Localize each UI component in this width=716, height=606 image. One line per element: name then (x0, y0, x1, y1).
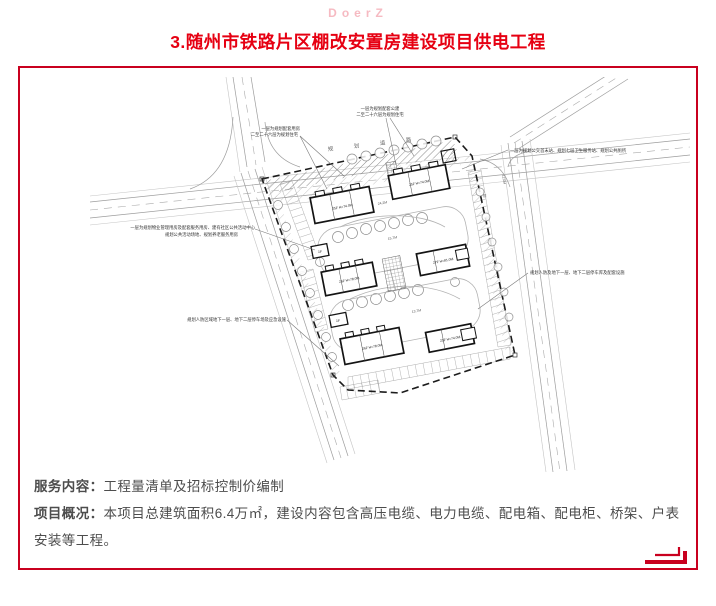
svg-text:1F: 1F (318, 250, 322, 254)
svg-text:12.0M: 12.0M (501, 174, 507, 184)
svg-text:规划人防区域地下一层、地下二层停车场及应急设施: 规划人防区域地下一层、地下二层停车场及应急设施 (187, 316, 287, 323)
slide-page: DoerZ 3.随州市铁路片区棚改安置房建设项目供电工程 (0, 0, 716, 606)
building-6: 25F H=74.0M (426, 323, 478, 352)
site-plan-drawing: 规 划 道 路 规 划 路 (90, 77, 690, 472)
building-3: 26F H=78.0M (320, 257, 377, 295)
svg-text:二至二十六层为规划住宅: 二至二十六层为规划住宅 (356, 111, 404, 118)
project-description: 服务内容：工程量清单及招标控制价编制 项目概况：本项目总建筑面积6.4万㎡，建设… (34, 473, 688, 554)
svg-text:规: 规 (327, 144, 334, 153)
svg-text:规划公共活动场地、规划养老服务用房: 规划公共活动场地、规划养老服务用房 (165, 231, 238, 238)
svg-text:24.2M: 24.2M (377, 200, 387, 206)
svg-text:13.7M: 13.7M (411, 308, 421, 314)
watermark: DoerZ (0, 6, 716, 20)
corner-bracket-icon (642, 545, 690, 565)
svg-text:一层为规划配套公建: 一层为规划配套公建 (361, 105, 400, 112)
svg-text:一层为规划公交首末站、规划七层卫生服务站、规划公共厕所: 一层为规划公交首末站、规划七层卫生服务站、规划公共厕所 (510, 147, 627, 154)
service-label: 服务内容： (34, 479, 104, 494)
service-value: 工程量清单及招标控制价编制 (104, 479, 285, 494)
overview-label: 项目概况： (34, 506, 104, 521)
svg-text:一层为规划物业管理用房及配套服务用房、建有社区公共活动中心: 一层为规划物业管理用房及配套服务用房、建有社区公共活动中心 (130, 224, 255, 231)
service-line: 服务内容：工程量清单及招标控制价编制 (34, 473, 688, 500)
content-frame: 规 划 道 路 规 划 路 (18, 66, 698, 570)
svg-text:划: 划 (353, 141, 359, 150)
page-title: 3.随州市铁路片区棚改安置房建设项目供电工程 (0, 29, 716, 54)
overview-value: 本项目总建筑面积6.4万㎡，建设内容包含高压电缆、电力电缆、配电箱、配电柜、桥架… (34, 506, 679, 548)
svg-text:道: 道 (379, 138, 386, 147)
corner-service-building (441, 149, 456, 163)
planting-bed (382, 256, 406, 292)
small-building-2: 1F (329, 312, 348, 327)
svg-text:二至二十六层为规划住宅: 二至二十六层为规划住宅 (251, 131, 299, 138)
building-4: 27F H=81.0M (416, 244, 470, 275)
overview-line: 项目概况：本项目总建筑面积6.4万㎡，建设内容包含高压电缆、电力电缆、配电箱、配… (34, 500, 688, 554)
building-5: 26F H=78.0M (339, 323, 404, 365)
svg-text:1F: 1F (336, 319, 340, 323)
svg-text:规划人防及地下一层、地下二层停车库及配套设施: 规划人防及地下一层、地下二层停车库及配套设施 (530, 269, 625, 276)
svg-text:15.7M: 15.7M (387, 235, 397, 241)
svg-text:一层为规划配套用房: 一层为规划配套用房 (261, 125, 300, 132)
small-building-1: 1F (311, 244, 329, 259)
